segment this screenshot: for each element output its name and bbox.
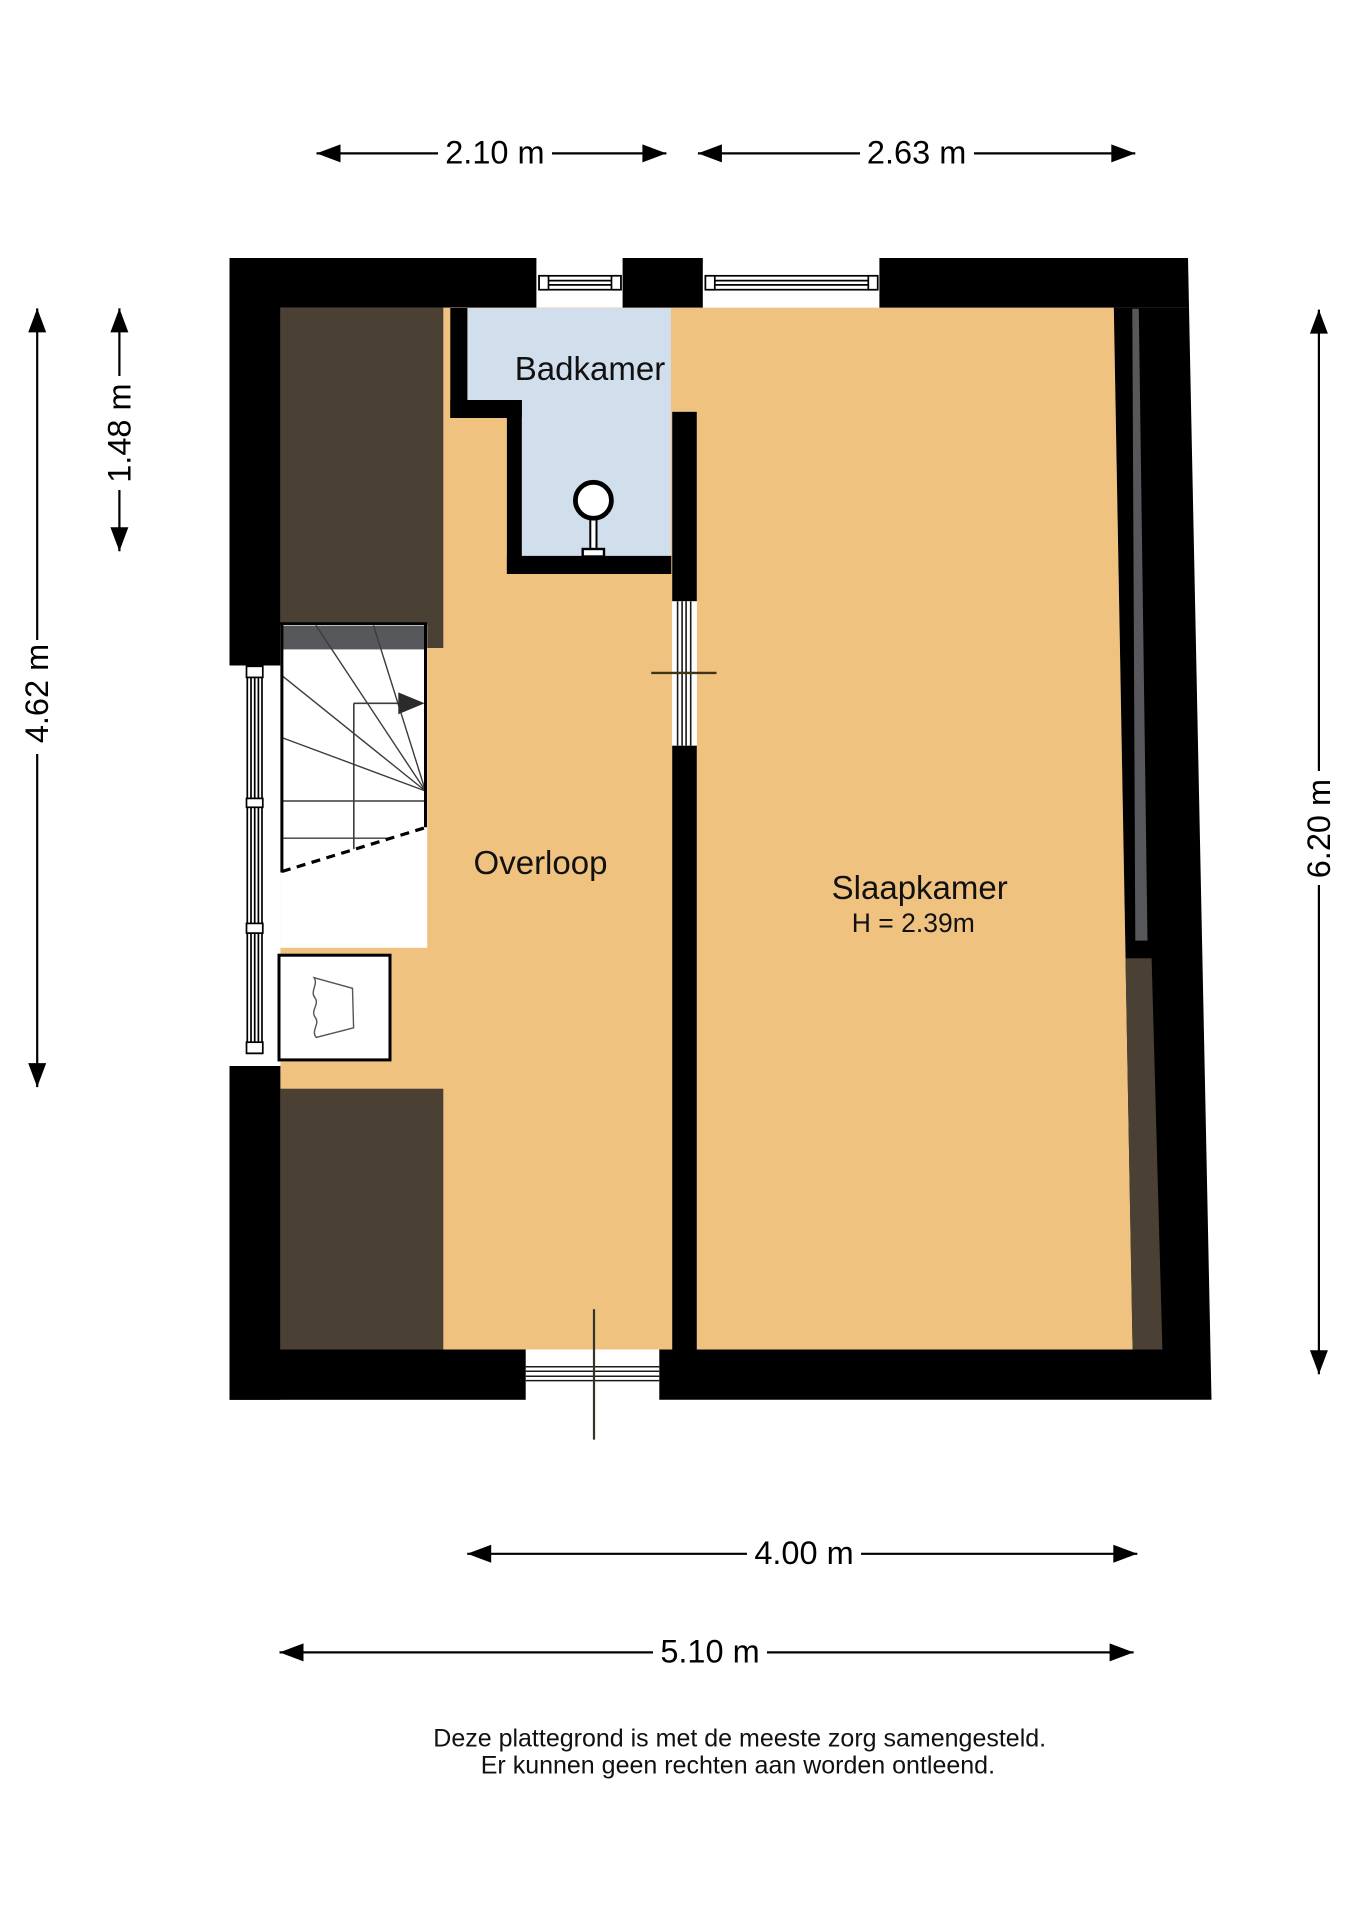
svg-text:4.62 m: 4.62 m [19,644,55,743]
svg-text:6.20 m: 6.20 m [1301,779,1337,878]
svg-text:Er kunnen geen rechten aan wor: Er kunnen geen rechten aan worden ontlee… [481,1752,995,1780]
svg-text:2.63 m: 2.63 m [867,134,966,170]
svg-text:Badkamer: Badkamer [515,350,665,387]
svg-text:4.00 m: 4.00 m [754,1535,853,1571]
svg-text:Overloop: Overloop [474,844,608,881]
svg-text:5.10 m: 5.10 m [660,1633,759,1669]
svg-text:H = 2.39m: H = 2.39m [852,908,975,938]
svg-text:2.10 m: 2.10 m [445,134,544,170]
svg-text:Deze plattegrond is met de mee: Deze plattegrond is met de meeste zorg s… [433,1725,1046,1753]
svg-text:1.48 m: 1.48 m [101,383,137,482]
svg-text:Slaapkamer: Slaapkamer [832,869,1008,906]
